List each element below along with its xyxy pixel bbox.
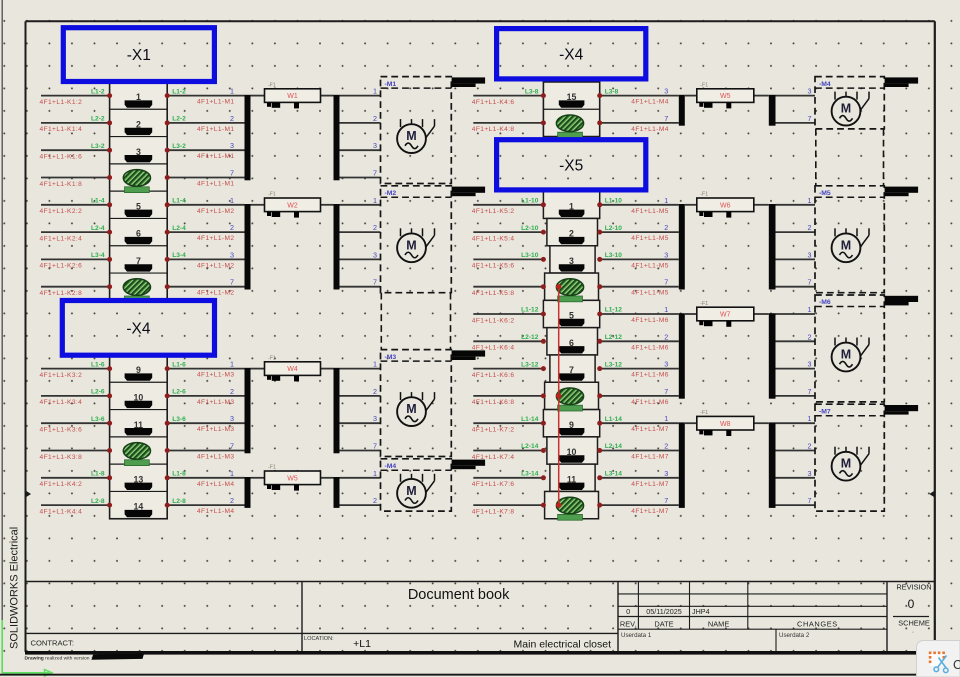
svg-text:4F1+L1-K1:2: 4F1+L1-K1:2 [40, 99, 83, 106]
svg-text:3: 3 [664, 87, 668, 96]
svg-text:3: 3 [808, 87, 812, 96]
svg-text:1: 1 [808, 305, 812, 314]
svg-text:L3-14: L3-14 [605, 471, 623, 478]
svg-text:3: 3 [808, 250, 812, 259]
svg-text:Main electrical closet: Main electrical closet [514, 639, 612, 651]
svg-text:W6: W6 [720, 202, 731, 209]
svg-text:4F1+L1-K7:2: 4F1+L1-K7:2 [472, 427, 515, 434]
svg-text:3: 3 [373, 414, 377, 423]
svg-text:7: 7 [373, 442, 377, 451]
svg-text:2: 2 [230, 387, 234, 396]
svg-text:1: 1 [808, 196, 812, 205]
svg-text:3: 3 [664, 360, 668, 369]
svg-text:4F1+L1-K5:4: 4F1+L1-K5:4 [472, 235, 515, 242]
svg-text:7: 7 [373, 169, 377, 178]
svg-text:3: 3 [230, 250, 234, 259]
svg-text:Document book: Document book [408, 587, 510, 603]
svg-text:L2-6: L2-6 [172, 389, 186, 396]
svg-text:+L1: +L1 [353, 638, 371, 650]
svg-text:M: M [841, 457, 851, 471]
svg-text:L2-8: L2-8 [91, 498, 105, 505]
svg-text:M: M [841, 348, 851, 362]
svg-text:L2-12: L2-12 [521, 334, 539, 341]
svg-text:-F1: -F1 [268, 82, 276, 88]
svg-text:Userdata 1: Userdata 1 [621, 632, 652, 639]
svg-text:3: 3 [373, 250, 377, 259]
svg-text:1: 1 [664, 196, 668, 205]
svg-text:7: 7 [808, 278, 812, 287]
svg-text:1: 1 [664, 414, 668, 423]
svg-text:2: 2 [808, 442, 812, 451]
svg-text:NAME: NAME [708, 620, 729, 629]
svg-text:L2-12: L2-12 [605, 334, 623, 341]
svg-text:1: 1 [373, 196, 377, 205]
svg-text:W5: W5 [720, 93, 731, 100]
svg-text:L1-10: L1-10 [521, 198, 539, 205]
svg-text:2: 2 [664, 332, 668, 341]
svg-text:L1-8: L1-8 [172, 471, 186, 478]
svg-text:Drawing realized with version: Drawing realized with version : [25, 655, 93, 661]
svg-text:2: 2 [664, 442, 668, 451]
svg-text:4F1+L1-K4:2: 4F1+L1-K4:2 [40, 481, 83, 488]
svg-text:JHP4: JHP4 [692, 607, 710, 616]
svg-text:1: 1 [230, 196, 234, 205]
svg-text:4F1+L1-M6: 4F1+L1-M6 [631, 372, 669, 379]
svg-text:4F1+L1-K7:8: 4F1+L1-K7:8 [472, 508, 515, 515]
svg-text:4F1+L1-M2: 4F1+L1-M2 [197, 208, 235, 215]
svg-text:-F1: -F1 [268, 355, 276, 361]
svg-text:LOCATION:: LOCATION: [304, 636, 334, 642]
svg-text:4F1+L1-K1:6: 4F1+L1-K1:6 [40, 154, 83, 161]
svg-text:SCHEME: SCHEME [898, 619, 930, 628]
svg-text:REVISION: REVISION [896, 583, 931, 592]
svg-text:4F1+L1-M5: 4F1+L1-M5 [631, 262, 669, 269]
svg-text:7: 7 [373, 278, 377, 287]
svg-text:4F1+L1-K3:6: 4F1+L1-K3:6 [40, 427, 83, 434]
svg-text:-F1: -F1 [700, 410, 708, 416]
svg-text:4F1+L1-M5: 4F1+L1-M5 [631, 235, 669, 242]
svg-text:3: 3 [230, 414, 234, 423]
svg-text:4F1+L1-M6: 4F1+L1-M6 [631, 399, 669, 406]
svg-text:2: 2 [230, 223, 234, 232]
svg-text:4F1+L1-K1:4: 4F1+L1-K1:4 [40, 126, 83, 133]
svg-text:4F1+L1-K2:8: 4F1+L1-K2:8 [40, 290, 83, 297]
svg-text:M: M [841, 102, 851, 116]
svg-text:L3-2: L3-2 [91, 143, 105, 150]
svg-text:-X1: -X1 [127, 47, 151, 64]
svg-text:L2-14: L2-14 [605, 443, 623, 450]
svg-text:L3-10: L3-10 [521, 252, 539, 259]
svg-text:7: 7 [664, 387, 668, 396]
svg-text:7: 7 [230, 442, 234, 451]
svg-text:W8: W8 [720, 421, 731, 428]
svg-text:4F1+L1-M1: 4F1+L1-M1 [197, 181, 235, 188]
svg-text:W1: W1 [287, 93, 298, 100]
svg-text:L2-8: L2-8 [172, 498, 186, 505]
svg-text:4F1+L1-M7: 4F1+L1-M7 [631, 481, 669, 488]
svg-text:7: 7 [664, 496, 668, 505]
svg-text:M: M [406, 238, 416, 252]
svg-text:4F1+L1-K2:2: 4F1+L1-K2:2 [40, 208, 83, 215]
svg-text:-X5: -X5 [559, 157, 583, 174]
svg-text:L2-2: L2-2 [91, 116, 105, 123]
svg-text:4F1+L1-M2: 4F1+L1-M2 [197, 290, 235, 297]
svg-text:1: 1 [373, 469, 377, 478]
svg-text:4F1+L1-K4:4: 4F1+L1-K4:4 [40, 508, 83, 515]
svg-text:L3-6: L3-6 [91, 416, 105, 423]
svg-text:-X4: -X4 [126, 321, 151, 338]
svg-text:05/11/2025: 05/11/2025 [646, 607, 681, 616]
svg-text:L3-4: L3-4 [172, 252, 186, 259]
svg-text:L3-2: L3-2 [172, 143, 186, 150]
svg-text:1: 1 [373, 87, 377, 96]
svg-text:4F1+L1-M3: 4F1+L1-M3 [197, 454, 235, 461]
svg-text:DATE: DATE [654, 620, 673, 629]
svg-text:4F1+L1-M7: 4F1+L1-M7 [631, 508, 669, 515]
svg-text:2: 2 [230, 496, 234, 505]
svg-text:L2-4: L2-4 [91, 225, 105, 232]
svg-text:4F1+L1-M4: 4F1+L1-M4 [631, 99, 669, 106]
svg-text:CHANGES: CHANGES [797, 620, 838, 629]
svg-text:-M5: -M5 [819, 190, 831, 197]
svg-text:M: M [841, 238, 851, 252]
svg-text:4F1+L1-M4: 4F1+L1-M4 [197, 481, 235, 488]
svg-text:L3-8: L3-8 [525, 88, 539, 95]
svg-text:Userdata 2: Userdata 2 [779, 632, 810, 639]
svg-text:2: 2 [373, 223, 377, 232]
svg-text:1: 1 [808, 414, 812, 423]
svg-text:L3-8: L3-8 [605, 88, 619, 95]
svg-text:L1-2: L1-2 [172, 88, 186, 95]
svg-text:-F1: -F1 [700, 82, 708, 88]
svg-text:2: 2 [373, 387, 377, 396]
svg-text:REV.: REV. [620, 620, 637, 629]
svg-text:4F1+L1-K5:2: 4F1+L1-K5:2 [472, 208, 515, 215]
svg-text:2: 2 [230, 114, 234, 123]
svg-text:L2-10: L2-10 [605, 225, 623, 232]
svg-text:L1-4: L1-4 [91, 198, 105, 205]
svg-text:-F1: -F1 [268, 465, 276, 471]
svg-text:-M4: -M4 [819, 81, 831, 88]
svg-text:7: 7 [664, 278, 668, 287]
svg-text:L2-6: L2-6 [91, 389, 105, 396]
svg-text:-M7: -M7 [819, 408, 831, 415]
svg-text:4F1+L1-M4: 4F1+L1-M4 [197, 508, 235, 515]
svg-text:4F1+L1-M1: 4F1+L1-M1 [197, 153, 235, 160]
svg-text:3: 3 [808, 469, 812, 478]
svg-text:L1-6: L1-6 [172, 361, 186, 368]
svg-text:4F1+L1-K6:6: 4F1+L1-K6:6 [472, 372, 515, 379]
svg-text:L2-2: L2-2 [172, 116, 186, 123]
svg-text:L1-8: L1-8 [91, 471, 105, 478]
svg-text:1: 1 [230, 87, 234, 96]
svg-text:4F1+L1-K3:2: 4F1+L1-K3:2 [40, 372, 83, 379]
svg-text:4F1+L1-K2:6: 4F1+L1-K2:6 [40, 263, 83, 270]
svg-text:4F1+L1-K6:2: 4F1+L1-K6:2 [472, 317, 515, 324]
svg-text:SOLIDWORKS Electrical: SOLIDWORKS Electrical [9, 527, 21, 649]
svg-text:W5: W5 [287, 475, 298, 482]
svg-text:4F1+L1-K4:6: 4F1+L1-K4:6 [472, 99, 515, 106]
svg-text:W4: W4 [287, 366, 298, 373]
svg-text:4F1+L1-M3: 4F1+L1-M3 [197, 399, 235, 406]
svg-text:4F1+L1-M5: 4F1+L1-M5 [631, 208, 669, 215]
svg-text:4F1+L1-M6: 4F1+L1-M6 [631, 344, 669, 351]
svg-text:L3-4: L3-4 [91, 252, 105, 259]
svg-text:3: 3 [664, 469, 668, 478]
svg-text:2: 2 [664, 223, 668, 232]
svg-text:4F1+L1-M1: 4F1+L1-M1 [197, 99, 235, 106]
svg-text:1: 1 [664, 305, 668, 314]
svg-text:L1-12: L1-12 [605, 307, 623, 314]
svg-text:4F1+L1-K2:4: 4F1+L1-K2:4 [40, 235, 83, 242]
svg-text:4F1+L1-K6:8: 4F1+L1-K6:8 [472, 399, 515, 406]
svg-text:-M6: -M6 [819, 299, 831, 306]
svg-text:4F1+L1-M3: 4F1+L1-M3 [197, 426, 235, 433]
svg-text:7: 7 [808, 114, 812, 123]
svg-text:L2-4: L2-4 [172, 225, 186, 232]
svg-text:L3-6: L3-6 [172, 416, 186, 423]
svg-text:4F1+L1-M2: 4F1+L1-M2 [197, 235, 235, 242]
svg-text:-X4: -X4 [559, 46, 584, 63]
svg-text:4F1+L1-K7:6: 4F1+L1-K7:6 [472, 481, 515, 488]
svg-text:4F1+L1-M3: 4F1+L1-M3 [197, 372, 235, 379]
svg-text:-F1: -F1 [700, 301, 708, 307]
svg-text:4F1+L1-K5:6: 4F1+L1-K5:6 [472, 263, 515, 270]
svg-text:-M1: -M1 [385, 81, 397, 88]
svg-text:0: 0 [908, 597, 915, 611]
svg-text:M: M [406, 402, 416, 416]
svg-text:L1-6: L1-6 [91, 361, 105, 368]
svg-text:3: 3 [808, 360, 812, 369]
svg-text:3: 3 [373, 141, 377, 150]
svg-text:7: 7 [664, 114, 668, 123]
svg-text:M: M [406, 484, 416, 498]
svg-text:W7: W7 [720, 312, 731, 319]
svg-text:L3-12: L3-12 [605, 361, 623, 368]
svg-text:4F1+L1-K5:8: 4F1+L1-K5:8 [472, 290, 515, 297]
svg-text:L1-14: L1-14 [605, 416, 623, 423]
svg-text:W2: W2 [287, 202, 298, 209]
svg-text:4F1+L1-M6: 4F1+L1-M6 [631, 317, 669, 324]
svg-text:M: M [406, 129, 416, 143]
svg-text:3: 3 [230, 141, 234, 150]
svg-text:2: 2 [808, 223, 812, 232]
svg-text:3: 3 [664, 250, 668, 259]
svg-text:4F1+L1-M7: 4F1+L1-M7 [631, 426, 669, 433]
svg-text:4F1+L1-K3:4: 4F1+L1-K3:4 [40, 399, 83, 406]
svg-text:2: 2 [808, 332, 812, 341]
svg-text:4F1+L1-K3:8: 4F1+L1-K3:8 [40, 454, 83, 461]
svg-text:4F1+L1-K1:8: 4F1+L1-K1:8 [40, 181, 83, 188]
svg-text:1: 1 [230, 469, 234, 478]
svg-text:2: 2 [373, 114, 377, 123]
svg-text:L1-4: L1-4 [172, 198, 186, 205]
svg-text:-F1: -F1 [700, 192, 708, 198]
svg-text:-M2: -M2 [385, 190, 397, 197]
svg-text:L1-10: L1-10 [605, 198, 623, 205]
svg-text:CONTRACT:: CONTRACT: [31, 639, 74, 648]
svg-text:L1-14: L1-14 [521, 416, 539, 423]
svg-text:L2-14: L2-14 [521, 443, 539, 450]
svg-text:-M4: -M4 [385, 463, 397, 470]
svg-text:7: 7 [230, 169, 234, 178]
svg-text:4F1+L1-M5: 4F1+L1-M5 [631, 290, 669, 297]
svg-text:1: 1 [230, 360, 234, 369]
svg-text:L1-2: L1-2 [91, 88, 105, 95]
svg-text:L3-14: L3-14 [521, 471, 539, 478]
svg-text:2: 2 [373, 496, 377, 505]
svg-text:1: 1 [373, 360, 377, 369]
svg-text:L3-10: L3-10 [605, 252, 623, 259]
svg-text:-M3: -M3 [385, 354, 397, 361]
svg-text:L2-10: L2-10 [521, 225, 539, 232]
svg-text:4F1+L1-M4: 4F1+L1-M4 [631, 126, 669, 133]
svg-text:0: 0 [626, 607, 630, 616]
svg-text:-F1: -F1 [268, 192, 276, 198]
svg-text:7: 7 [808, 387, 812, 396]
svg-text:4F1+L1-K4:8: 4F1+L1-K4:8 [472, 126, 515, 133]
svg-text:4F1+L1-M7: 4F1+L1-M7 [631, 454, 669, 461]
svg-text:4F1+L1-M2: 4F1+L1-M2 [197, 262, 235, 269]
svg-text:4F1+L1-M1: 4F1+L1-M1 [197, 126, 235, 133]
svg-text:7: 7 [808, 496, 812, 505]
svg-text:C: C [953, 658, 960, 672]
svg-text:L3-12: L3-12 [521, 361, 539, 368]
svg-text:L1-12: L1-12 [521, 307, 539, 314]
svg-text:7: 7 [230, 278, 234, 287]
